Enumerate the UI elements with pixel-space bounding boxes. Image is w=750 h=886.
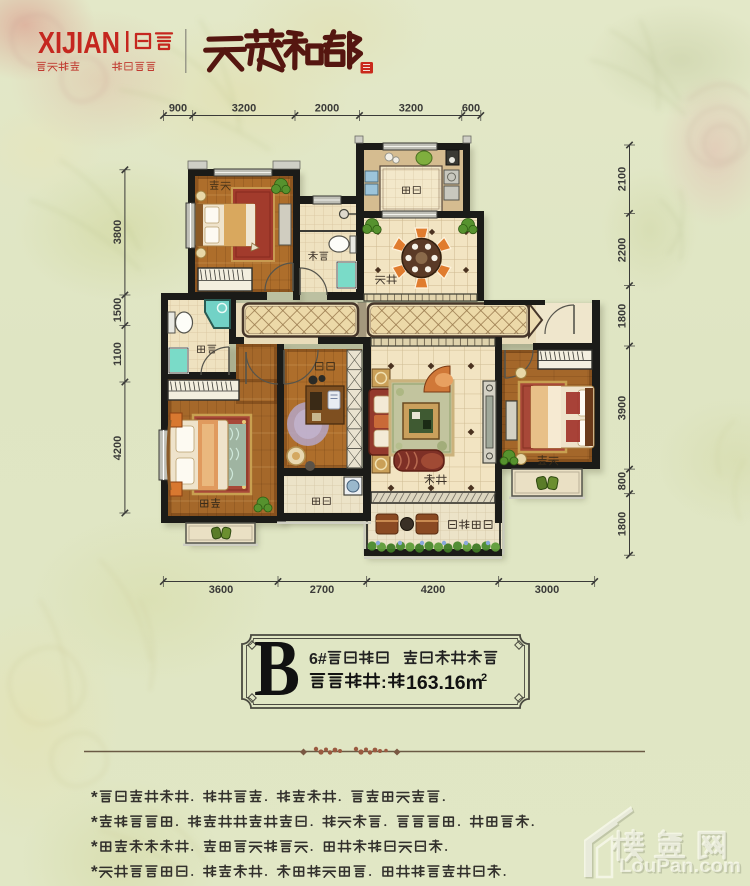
svg-text:600: 600 [462, 103, 480, 115]
svg-text:3200: 3200 [232, 103, 256, 115]
svg-text:4200: 4200 [421, 584, 445, 596]
svg-text:2000: 2000 [315, 103, 339, 115]
svg-text:1100: 1100 [112, 342, 124, 366]
svg-text:1500: 1500 [112, 298, 124, 322]
svg-text:3800: 3800 [112, 220, 124, 244]
svg-text:4200: 4200 [112, 436, 124, 460]
svg-text:2: 2 [481, 672, 487, 684]
svg-text:3900: 3900 [617, 396, 629, 420]
svg-text:*: * [91, 787, 98, 806]
svg-text:*: * [91, 862, 98, 881]
svg-text:3200: 3200 [399, 103, 423, 115]
svg-text:*: * [91, 812, 98, 831]
svg-text:1800: 1800 [617, 304, 629, 328]
svg-text:3000: 3000 [535, 584, 559, 596]
svg-text:163.16m: 163.16m [406, 672, 483, 694]
svg-text:2200: 2200 [617, 238, 629, 262]
svg-text:900: 900 [169, 103, 187, 115]
svg-text:LouPan.com: LouPan.com [619, 856, 741, 877]
svg-text:1800: 1800 [617, 512, 629, 536]
svg-text:XIJIAN: XIJIAN [38, 25, 120, 60]
svg-text:3600: 3600 [209, 584, 233, 596]
svg-text:2700: 2700 [310, 584, 334, 596]
svg-text:800: 800 [617, 472, 629, 490]
svg-text::: : [381, 673, 387, 692]
svg-text:B: B [254, 623, 300, 713]
svg-text:2100: 2100 [617, 167, 629, 191]
svg-text:6#: 6# [309, 651, 327, 668]
svg-text:*: * [91, 837, 98, 856]
